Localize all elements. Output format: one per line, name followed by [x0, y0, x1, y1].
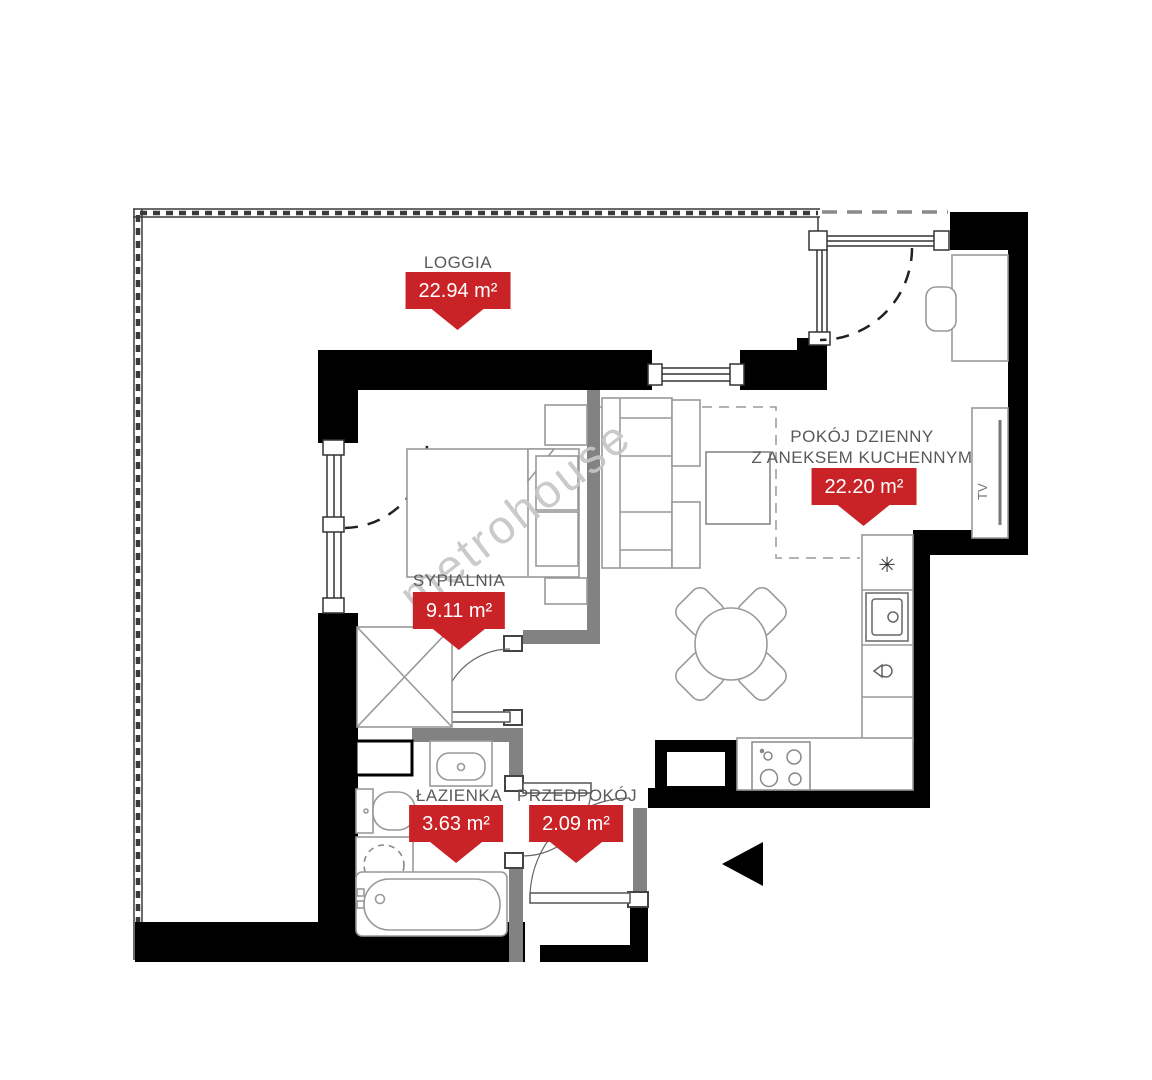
area-badge-living-room: 22.20 m²: [812, 468, 917, 505]
floor-plan-svg: TV ✳: [0, 0, 1152, 1080]
area-badge-loggia: 22.94 m²: [406, 272, 511, 309]
fridge-icon: ✳: [878, 553, 896, 577]
room-label-living-room: POKÓJ DZIENNY Z ANEKSEM KUCHENNYM: [751, 426, 972, 469]
cooktop: [752, 742, 810, 790]
loggia-door-swing-arc: [820, 248, 912, 340]
window-top: [648, 350, 744, 390]
toilet: [356, 789, 415, 833]
area-badge-bedroom: 9.11 m²: [413, 592, 505, 629]
tv-cabinet: TV: [972, 408, 1008, 538]
area-badge-bathroom: 3.63 m²: [409, 805, 503, 842]
kitchen-sink: [866, 593, 908, 641]
bathtub: [356, 872, 507, 936]
desk: [926, 255, 1008, 361]
bathroom-cabinet: [356, 741, 412, 775]
room-label-bathroom: ŁAZIENKA: [416, 785, 502, 806]
room-label-bedroom: SYPIALNIA: [413, 570, 505, 591]
dining-set: [672, 584, 791, 705]
room-label-loggia: LOGGIA: [424, 252, 492, 273]
floor-plan: TV ✳: [0, 0, 1152, 1080]
room-label-hallway: PRZEDPOKÓJ: [517, 785, 637, 806]
washbasin: [430, 741, 492, 786]
area-badge-hallway: 2.09 m²: [529, 805, 623, 842]
tv-label: TV: [975, 483, 990, 500]
ventilation-shaft: [655, 740, 737, 798]
door-jambs: [504, 636, 648, 907]
entrance-arrow-icon: [722, 842, 763, 886]
